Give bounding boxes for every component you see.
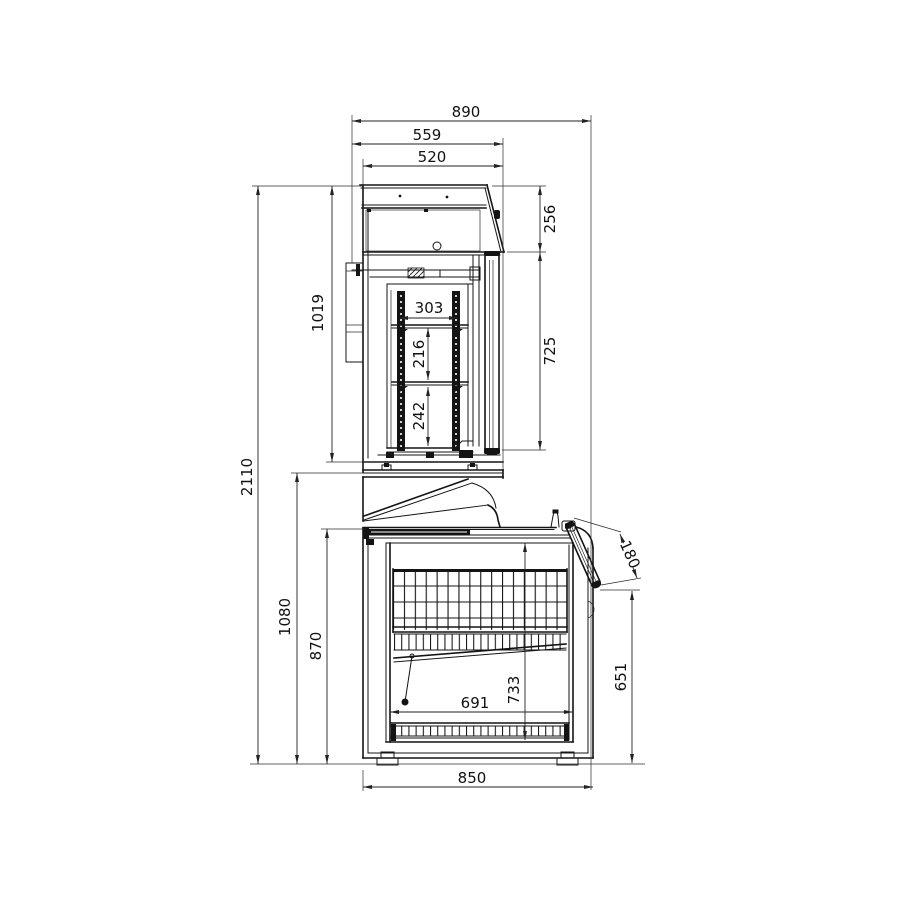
- dim-lid-door-width-label: 180: [616, 538, 644, 571]
- dim-overall-height: 2110: [238, 186, 363, 764]
- dim-lower-body-depth-label: 850: [458, 769, 487, 787]
- dim-lid-door-width: 180: [574, 518, 644, 585]
- dim-door-bottom-edge-height-label: 651: [612, 663, 630, 692]
- dim-upper-depth-body-label: 520: [418, 148, 447, 166]
- dim-upper-depth-body: 520: [363, 148, 503, 186]
- dim-shelf-spacing-bottom: 242: [410, 387, 428, 446]
- dim-shelf-clear-width: 303: [399, 299, 458, 318]
- dim-upper-front-top-height-label: 256: [541, 205, 559, 234]
- dim-upper-door-height-label: 725: [541, 337, 559, 366]
- dim-overall-width-label: 890: [452, 103, 481, 121]
- condenser-box: [346, 185, 377, 472]
- dim-counter-top-height: 1080: [276, 473, 363, 764]
- counter-assembly: [363, 463, 503, 527]
- upper-canopy: [360, 185, 504, 255]
- dim-lower-body-depth: 850: [363, 769, 593, 791]
- technical-drawing: 890 559 520 256 725 2110: [0, 0, 900, 900]
- dim-lower-unit-height-label: 870: [307, 632, 325, 661]
- dim-overall-height-label: 2110: [238, 458, 256, 496]
- dim-shelf-spacing-mid-label: 216: [410, 340, 428, 369]
- dim-lower-interior-depth: 691: [390, 694, 573, 712]
- dim-upper-depth-overall-label: 559: [413, 126, 442, 144]
- dim-lower-unit-height: 870: [307, 529, 366, 764]
- upper-glass-door: [484, 251, 500, 454]
- lid-handle-knob: [551, 510, 559, 528]
- right-foot: [557, 752, 578, 765]
- dim-upper-door-height: 725: [502, 252, 559, 450]
- lower-cabinet: [363, 510, 602, 766]
- lower-lid: [363, 527, 570, 545]
- dim-lower-interior-height-label: 733: [505, 676, 523, 705]
- dim-upper-unit-height-label: 1019: [309, 294, 327, 332]
- dim-shelf-spacing-bottom-label: 242: [410, 402, 428, 431]
- dim-shelf-spacing-mid: 216: [410, 328, 428, 380]
- dim-shelf-clear-width-label: 303: [415, 299, 444, 317]
- dim-counter-top-height-label: 1080: [276, 598, 294, 636]
- technical-drawing-page: 890 559 520 256 725 2110: [0, 0, 900, 900]
- left-foot: [377, 752, 398, 765]
- wire-basket: [393, 569, 567, 632]
- dimension-annotations: 890 559 520 256 725 2110: [238, 103, 645, 791]
- lower-basket-tier: [394, 634, 566, 662]
- dim-lower-interior-depth-label: 691: [461, 694, 490, 712]
- dim-door-bottom-edge-height: 651: [600, 590, 640, 763]
